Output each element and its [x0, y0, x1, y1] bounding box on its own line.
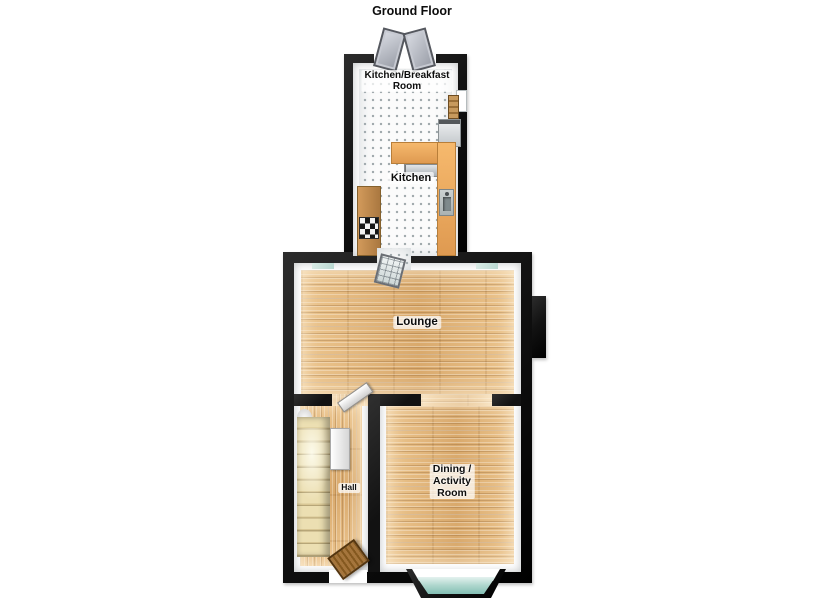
room-label-dining-line3: Room	[433, 488, 472, 500]
room-label-dining-line2: Activity	[433, 476, 472, 488]
hob	[359, 217, 379, 239]
lounge-top-window-right	[476, 263, 498, 269]
room-label-dining-line1: Dining /	[433, 464, 472, 476]
sink-tap	[445, 192, 449, 196]
lounge-top-window-left	[312, 263, 334, 269]
room-label-kitchen-breakfast-line1: Kitchen/Breakfast	[364, 70, 449, 81]
sink-basin	[443, 197, 451, 211]
wall-lounge-dining-stub	[492, 394, 521, 406]
room-label-dining: Dining / Activity Room	[430, 464, 475, 499]
room-label-kitchen-breakfast-line2: Room	[364, 81, 449, 92]
shelf-unit	[448, 95, 459, 119]
opening-lounge-dining	[421, 394, 492, 406]
hall-cupboard	[330, 428, 350, 470]
room-label-kitchen: Kitchen	[388, 172, 434, 184]
wall-hall-dining	[368, 394, 380, 572]
wall-lounge-hall	[294, 394, 332, 406]
page-title: Ground Floor	[369, 4, 455, 18]
staircase-highlight	[297, 428, 330, 500]
chimney-breast	[532, 296, 546, 358]
floorplan-ground-floor: Ground Floor Kitchen/Breakfast Room Kitc…	[0, 0, 825, 600]
sink	[439, 189, 454, 216]
room-label-kitchen-breakfast: Kitchen/Breakfast Room	[361, 70, 452, 92]
bay-window-glass	[415, 577, 497, 594]
room-label-lounge: Lounge	[393, 316, 441, 329]
room-label-hall: Hall	[338, 483, 360, 493]
lounge-floor	[301, 270, 514, 394]
